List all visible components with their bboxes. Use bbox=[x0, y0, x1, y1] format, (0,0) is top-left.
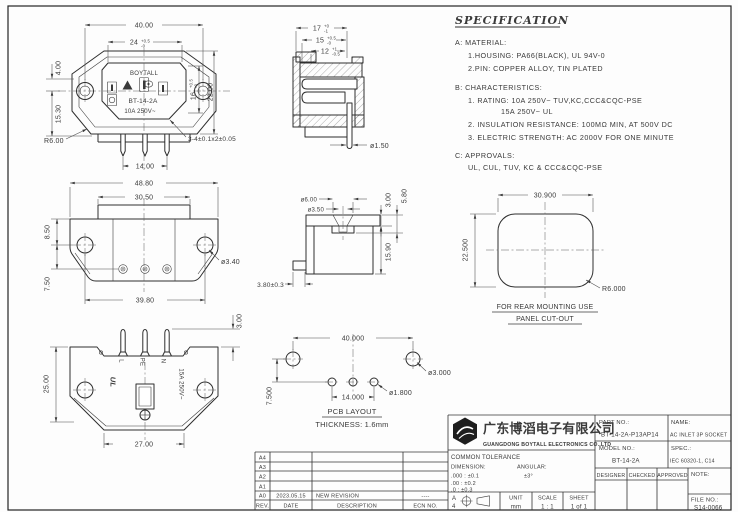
cert-mark-2 bbox=[108, 95, 117, 106]
dim-tol: -0 bbox=[327, 41, 332, 46]
section-bottom-wall bbox=[293, 115, 364, 127]
tolerance-row: .000 : ±0.1 bbox=[451, 474, 479, 480]
terminal-pins bbox=[119, 265, 172, 274]
drawing-canvas: 40.00 24 +0.5 -0 4.00 15.30 16 +0.5 -0 2… bbox=[0, 0, 738, 512]
rev-cell: A4 bbox=[259, 456, 266, 462]
solder-pin bbox=[143, 134, 147, 156]
side-view-b: ø6.00 ø3.50 3.00 5.80 15.90 3.80±0.3 bbox=[257, 189, 408, 289]
dim-label: 30.50 bbox=[135, 195, 154, 202]
spec-line: 2.PIN: COPPER ALLOY, TIN PLATED bbox=[468, 64, 603, 73]
pin-note: 3-4±0.1x2±0.05 bbox=[188, 136, 236, 143]
model-no-label: MODEL NO.: bbox=[599, 446, 635, 452]
dim-label: 7.500 bbox=[267, 387, 274, 406]
dim-label: 15 bbox=[316, 38, 324, 45]
pin-label: N bbox=[160, 359, 166, 364]
dim-tol: -0.5 bbox=[332, 52, 340, 57]
spec-title: SPECIFICATION bbox=[455, 14, 569, 27]
dimension-label: DIMENSION: bbox=[451, 465, 486, 471]
dim-tol: -0 bbox=[194, 83, 199, 88]
dim-label: 40.00 bbox=[135, 23, 154, 30]
section-contact-upper bbox=[302, 79, 357, 89]
pcb-layout-view: 40.000 7.500 14.000 ø3.000 ø1.800 PCB LA… bbox=[267, 334, 452, 429]
note-label: NOTE: bbox=[691, 472, 710, 478]
dim-label: 4.00 bbox=[56, 61, 63, 75]
name-value: AC INLET 3P SOCKET bbox=[670, 433, 728, 439]
dim-label: ø3.000 bbox=[428, 370, 451, 377]
tolerance-title: COMMON TOLERANCE bbox=[451, 455, 520, 461]
dim-label: 22.00 bbox=[208, 83, 215, 102]
dim-label: 12 bbox=[321, 49, 329, 56]
revision-table: A4 A3 A2 A1 A0 2023.05.15 NEW REVISION -… bbox=[255, 452, 448, 510]
spec-value: IEC 60320-1, C14 bbox=[670, 459, 715, 465]
dim-label: 3.00 bbox=[237, 314, 244, 328]
section-pin bbox=[347, 103, 352, 149]
dim-label: 7.50 bbox=[45, 277, 52, 291]
sheet-size-a: A bbox=[452, 496, 456, 502]
dim-tol: -1 bbox=[324, 29, 329, 34]
file-no-value: S14-0066 bbox=[694, 505, 723, 512]
section-top-wall bbox=[300, 63, 362, 77]
dim-label: 15.90 bbox=[386, 243, 393, 262]
model-no-value: BT-14-2A bbox=[612, 458, 640, 465]
spec-line: 1. RATING: 10A 250V~ TUV,KC,CCC&CQC-PSE bbox=[468, 96, 642, 105]
spec-line: 1.HOUSING: PA66(BLACK), UL 94V-0 bbox=[468, 51, 605, 60]
rear-view: 48.80 30.50 8.50 7.50 ø3.40 39.80 bbox=[45, 181, 240, 305]
front-view: 40.00 24 +0.5 -0 4.00 15.30 16 +0.5 -0 2… bbox=[44, 23, 236, 171]
tolerance-row: .0 : ±0.3 bbox=[451, 488, 473, 494]
spec-line: A: MATERIAL: bbox=[455, 38, 507, 47]
rev-header: DATE bbox=[283, 504, 298, 510]
dim-label: 39.80 bbox=[136, 298, 155, 305]
pcb-caption: PCB LAYOUT bbox=[328, 407, 377, 416]
sheet-size-4: 4 bbox=[452, 504, 456, 510]
brand-text: BOYTALL bbox=[130, 71, 158, 77]
dim-label: ø1.800 bbox=[389, 390, 412, 397]
triangle-mark-icon bbox=[123, 81, 133, 90]
part-no-value: BT-14-2A-P13AP14 bbox=[601, 432, 659, 439]
angular-label: ANGULAR: bbox=[517, 465, 547, 471]
section-contact-lower bbox=[302, 92, 345, 103]
dim-label: ø3.40 bbox=[221, 259, 240, 266]
cutout-caption: PANEL CUT-OUT bbox=[516, 316, 574, 323]
tolerance-row: .00 : ±0.2 bbox=[451, 481, 476, 487]
specification-block: SPECIFICATION A: MATERIAL: 1.HOUSING: PA… bbox=[455, 14, 674, 172]
section-top-tab bbox=[352, 57, 363, 63]
dim-label: 5.80 bbox=[402, 189, 409, 203]
spec-line: 3. ELECTRIC STRENGTH: AC 2000V FOR ONE M… bbox=[468, 133, 674, 142]
unit-label: UNIT bbox=[509, 496, 523, 502]
spec-line: UL, CUL, TUV, KC & CCC&CQC-PSE bbox=[468, 163, 603, 172]
name-label: NAME: bbox=[671, 420, 691, 426]
pin-label: L bbox=[118, 359, 124, 363]
company-name-en: GUANGDONG BOYTALL ELECTRONICS CO.,LTD bbox=[483, 442, 611, 448]
pcb-caption: THICKNESS: 1.6mm bbox=[315, 420, 388, 429]
section-foot bbox=[305, 127, 350, 137]
designer-label: DESIGNER bbox=[597, 473, 626, 479]
approved-label: APPROVED bbox=[657, 473, 687, 479]
ul-mark: UL bbox=[109, 377, 118, 388]
dim-label: 22.500 bbox=[463, 239, 470, 262]
dim-label: 40.000 bbox=[342, 336, 365, 343]
rev-cell: A1 bbox=[259, 485, 266, 491]
rev-cell: A0 bbox=[259, 494, 266, 500]
unit-value: mm bbox=[511, 505, 521, 511]
solder-pin bbox=[165, 134, 169, 156]
sheet-label: SHEET bbox=[569, 496, 589, 502]
pin-label: PE bbox=[139, 358, 145, 366]
dim-tol: -0 bbox=[141, 44, 146, 49]
dim-label: 30.900 bbox=[534, 193, 557, 200]
rev-header: REV. bbox=[256, 504, 269, 510]
rev-cell: A3 bbox=[259, 465, 266, 471]
scale-label: SCALE bbox=[538, 496, 557, 502]
dim-label: 14.000 bbox=[342, 395, 365, 402]
company-name-cn: 广东博滔电子有限公司 bbox=[483, 421, 615, 437]
dim-label: ø1.50 bbox=[370, 143, 389, 150]
rev-header: ECN NO. bbox=[413, 504, 438, 510]
checked-label: CHECKED bbox=[629, 473, 656, 479]
side-section-view: 17 +0 -1 15 +0.5 -0 12 +1 -0.5 ø1.50 bbox=[293, 24, 389, 151]
dim-label: 17 bbox=[313, 26, 321, 33]
model-text: BT-14-2A bbox=[128, 98, 158, 105]
file-no-label: FILE NO.: bbox=[691, 498, 719, 504]
dim-label: 3.80±0.3 bbox=[257, 282, 284, 289]
drawing-sheet: 40.00 24 +0.5 -0 4.00 15.30 16 +0.5 -0 2… bbox=[0, 0, 738, 512]
tolerance-angular-value: ±3° bbox=[524, 474, 533, 480]
rev-cell: A2 bbox=[259, 475, 266, 481]
spec-line: B: CHARACTERISTICS: bbox=[455, 83, 542, 92]
rev-header: DESCRIPTION bbox=[337, 504, 377, 510]
rating-text: 15A 250V~ bbox=[178, 368, 184, 400]
rev-cell: NEW REVISION bbox=[316, 494, 359, 500]
dim-label: ø6.00 bbox=[301, 198, 318, 204]
solder-pins bbox=[119, 330, 172, 357]
rev-cell: 2023.05.15 bbox=[276, 494, 306, 500]
dim-label-group: 16 +0.5 -0 bbox=[189, 78, 199, 100]
panel-cutout-view: 30.900 22.500 R6.000 FOR REAR MOUNTING U… bbox=[463, 193, 626, 325]
solder-pin bbox=[121, 134, 125, 156]
spec-line: C: APPROVALS: bbox=[455, 151, 515, 160]
dim-label: ø3.50 bbox=[308, 208, 325, 214]
third-angle-projection-icon bbox=[461, 495, 490, 507]
left-wall bbox=[306, 226, 314, 274]
cutout-outline bbox=[498, 214, 593, 287]
cutout-caption: FOR REAR MOUNTING USE bbox=[497, 304, 594, 311]
dim-label: 24 bbox=[130, 40, 138, 47]
foot-pin bbox=[293, 261, 306, 270]
dim-label: 25.00 bbox=[44, 375, 51, 394]
dim-label: 8.50 bbox=[45, 225, 52, 239]
dim-label: R6.00 bbox=[44, 138, 64, 145]
dim-label: 48.80 bbox=[135, 181, 154, 188]
rev-cell: ---- bbox=[421, 494, 429, 500]
scale-value: 1 : 1 bbox=[541, 505, 554, 511]
dim-label: 14.00 bbox=[136, 164, 155, 171]
dim-label: R6.000 bbox=[602, 286, 626, 293]
part-no-label: PART NO.: bbox=[599, 420, 629, 426]
dim-label: 16 bbox=[191, 92, 198, 100]
spec-label: SPEC.: bbox=[671, 446, 691, 452]
bottom-view: L PE N 15A 250V~ UL 3.00 25.00 27.00 bbox=[44, 314, 244, 449]
spec-line: 15A 250V~ UL bbox=[501, 107, 553, 116]
dim-label: 27.00 bbox=[135, 442, 154, 449]
spec-line: 2. INSULATION RESISTANCE: 100MΩ MIN, AT … bbox=[468, 120, 673, 129]
sheet-value: 1 of 1 bbox=[571, 505, 588, 511]
company-logo-icon bbox=[453, 418, 477, 445]
rating-text: 10A 250V~ bbox=[124, 109, 156, 115]
dim-label: 3.00 bbox=[386, 193, 393, 207]
dim-label: 15.30 bbox=[56, 105, 63, 124]
title-block: 广东博滔电子有限公司 GUANGDONG BOYTALL ELECTRONICS… bbox=[448, 415, 731, 512]
